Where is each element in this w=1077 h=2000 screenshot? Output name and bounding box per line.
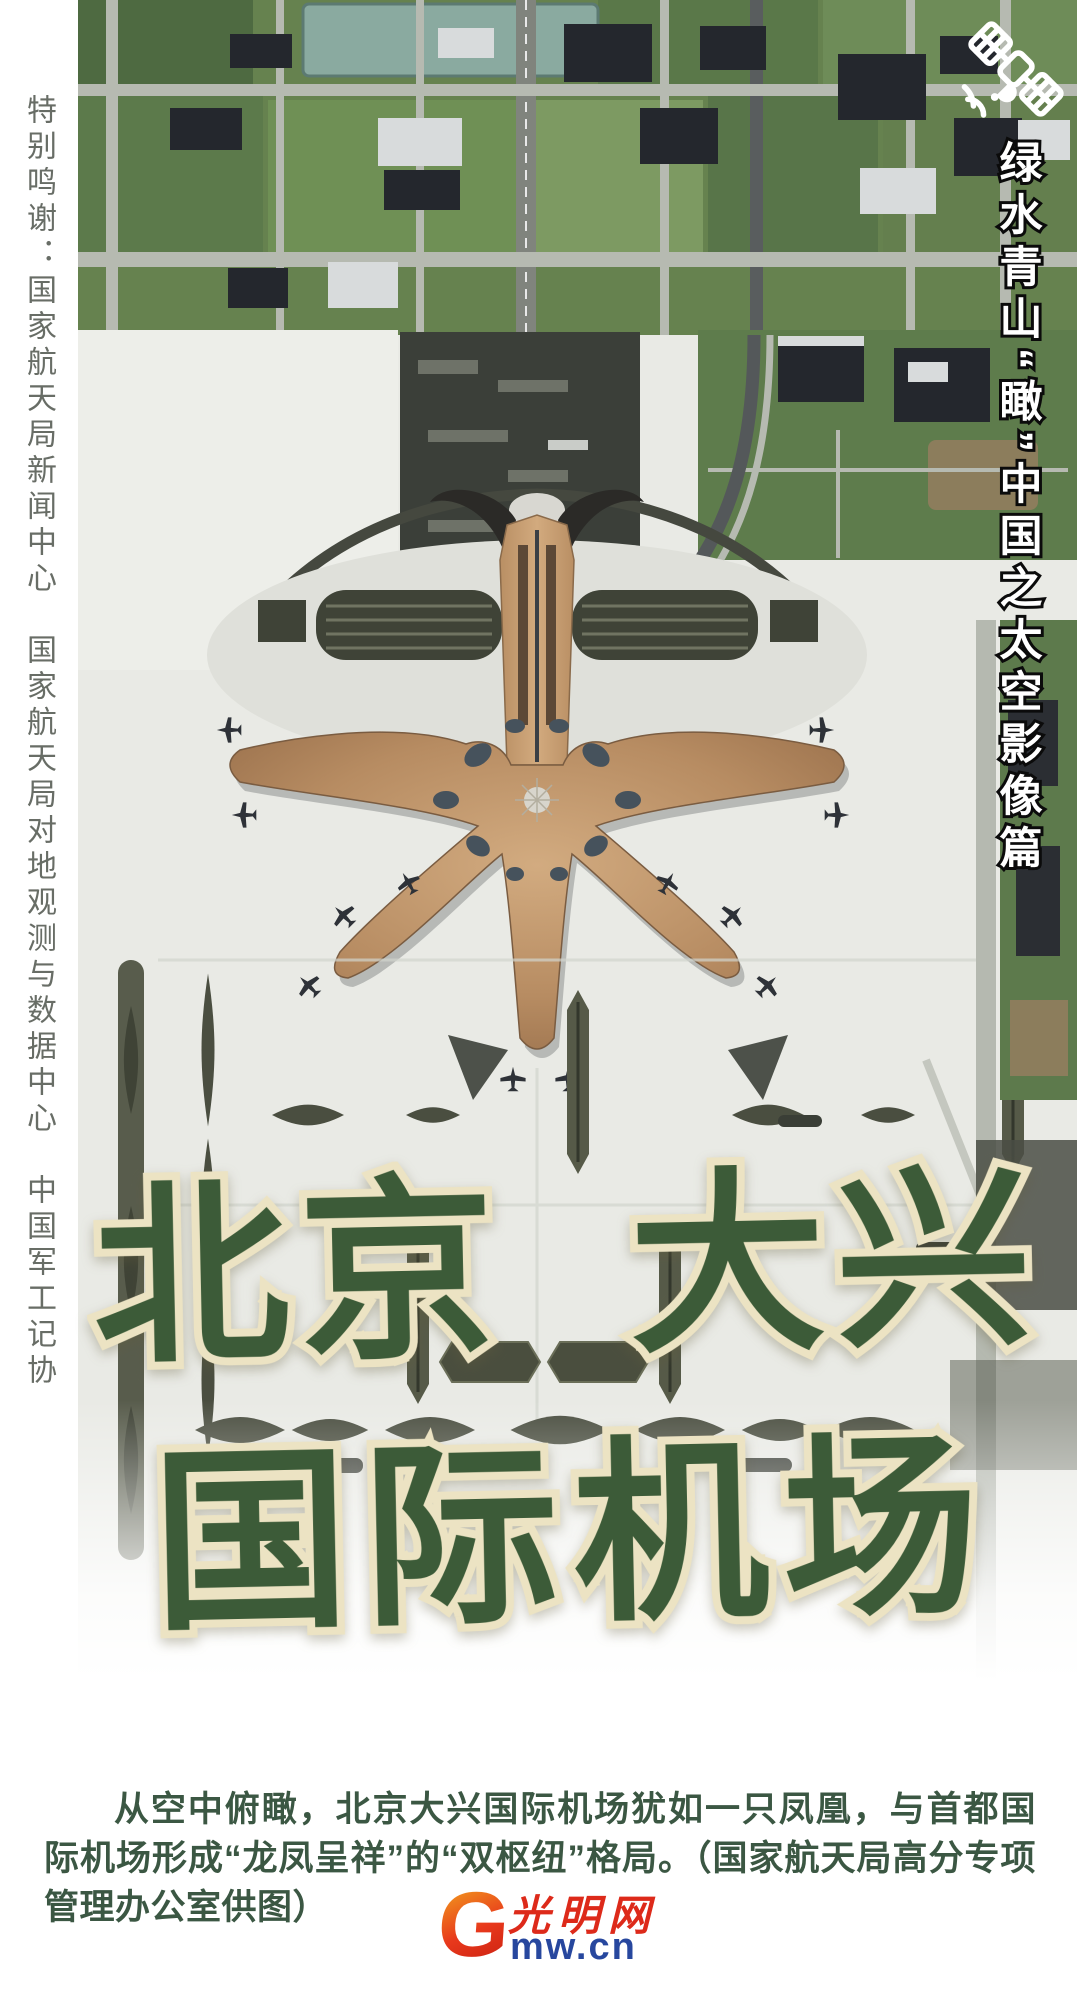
poster-root: 特别鸣谢：国家航天局新闻中心 国家航天局对地观测与数据中心 中国军工记协 绿水青…	[0, 0, 1077, 2000]
main-title: 北京 大兴 国际机场	[65, 1126, 1076, 1680]
right-banner-text: 绿水青山“瞰”中国之太空影像篇	[986, 140, 1048, 877]
title-line-2: 国际机场	[70, 1392, 1075, 1679]
satellite-icon	[960, 10, 1072, 128]
gmw-logo: G 光明网 mw.cn	[438, 1882, 698, 1972]
logo-g-mark: G	[435, 1882, 513, 1968]
left-credits-panel: 特别鸣谢：国家航天局新闻中心 国家航天局对地观测与数据中心 中国军工记协	[0, 0, 78, 2000]
credits-text: 特别鸣谢：国家航天局新闻中心 国家航天局对地观测与数据中心 中国军工记协	[16, 94, 60, 1390]
title-line-1: 北京 大兴	[65, 1126, 1070, 1413]
logo-domain: mw.cn	[510, 1926, 637, 1969]
